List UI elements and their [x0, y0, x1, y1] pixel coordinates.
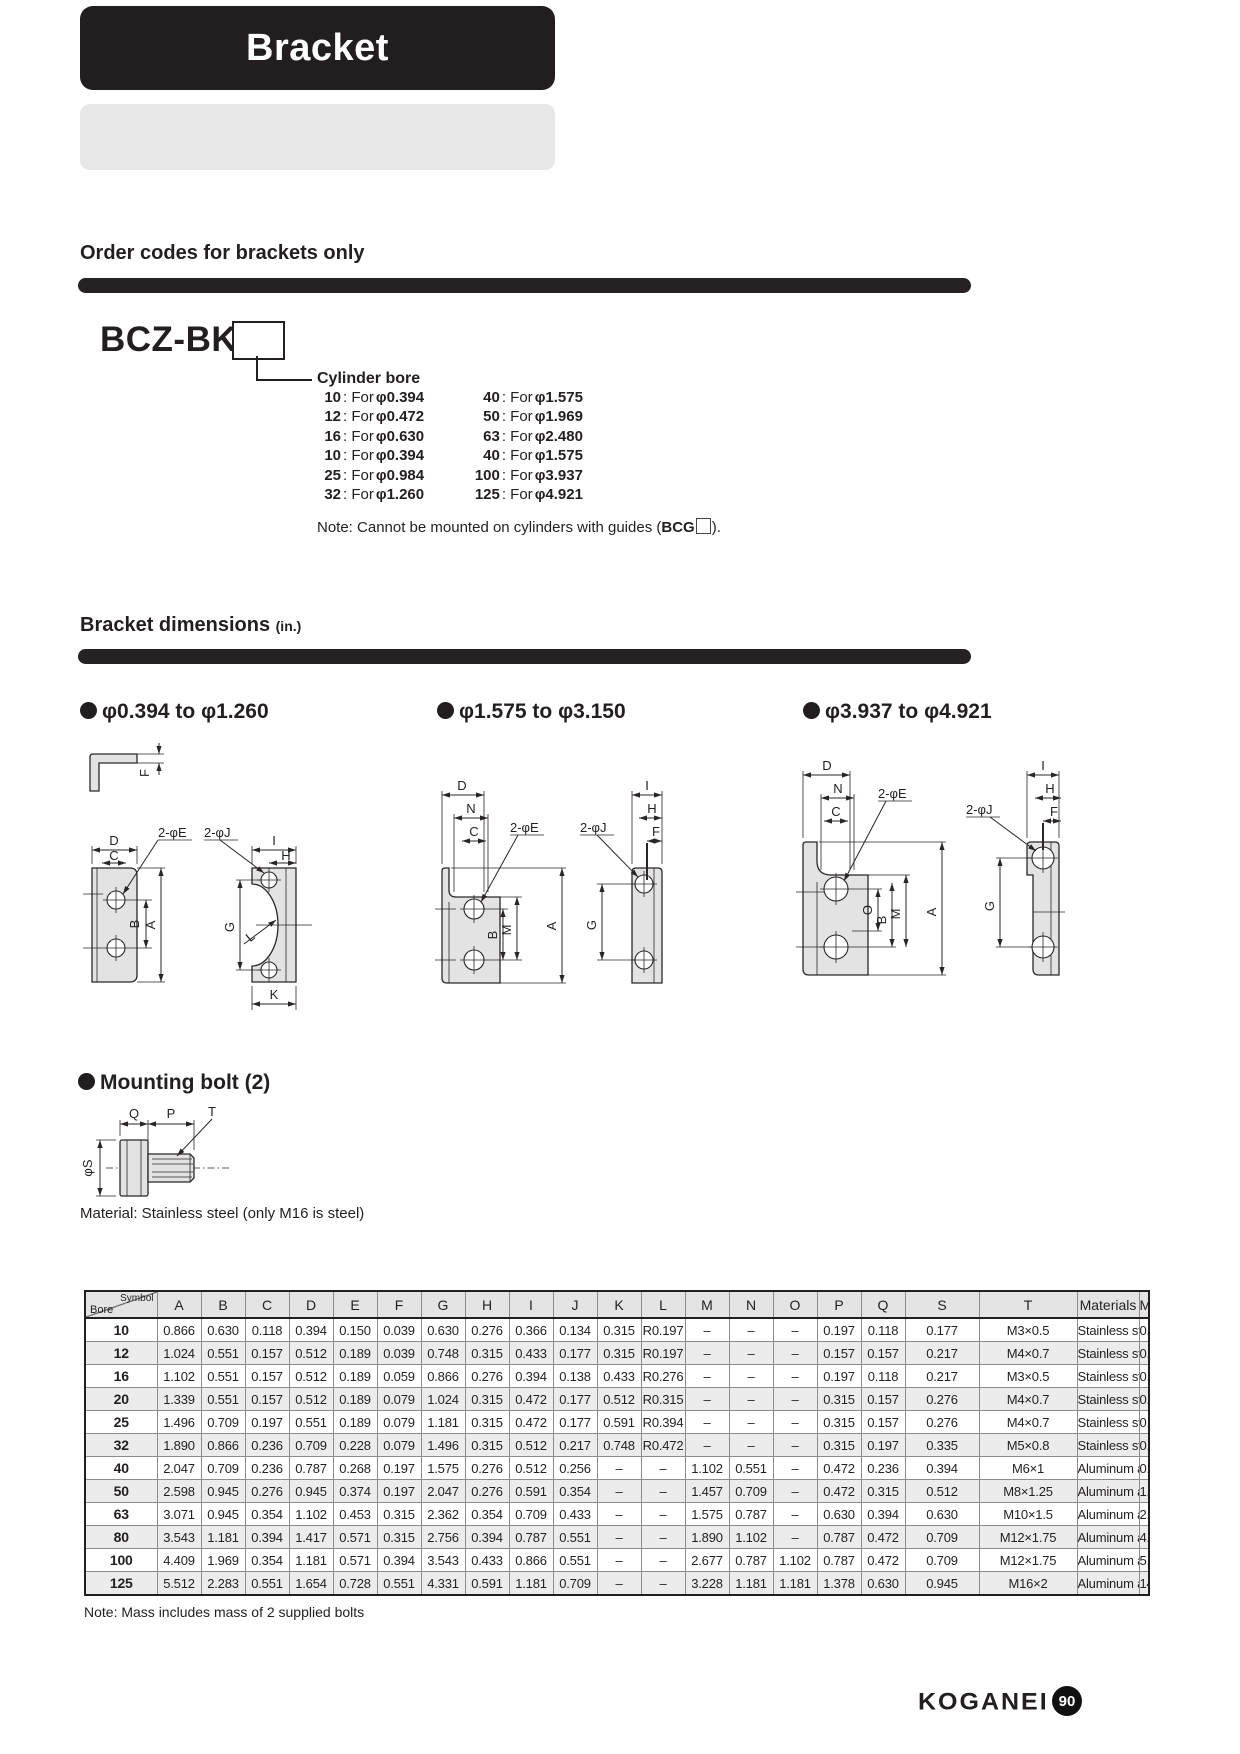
bore-value: φ0.394	[376, 388, 452, 407]
dimensions-heading-text: Bracket dimensions	[80, 614, 270, 636]
bore-value: φ1.575	[535, 446, 583, 465]
table-cell: 0.551	[245, 1572, 289, 1596]
table-row: 321.8900.8660.2360.7090.2280.0791.4960.3…	[85, 1434, 1149, 1457]
table-cell: 1.102	[685, 1457, 729, 1480]
dim-label-phi-s: φS	[80, 1159, 95, 1176]
table-cell: 0.315	[817, 1411, 861, 1434]
table-row: 161.1020.5510.1570.5120.1890.0590.8660.2…	[85, 1365, 1149, 1388]
table-cell: 0.354	[245, 1503, 289, 1526]
table-cell: 0.157	[861, 1342, 905, 1365]
table-cell: 0.21	[1139, 1342, 1149, 1365]
bore-size-box	[232, 321, 285, 360]
table-cell: Stainless steel	[1077, 1434, 1139, 1457]
table-cell: M3×0.5	[979, 1318, 1077, 1342]
bore-range-text: φ3.937 to φ4.921	[825, 700, 992, 723]
dim-label-b: B	[874, 916, 889, 925]
table-cell: 0.189	[333, 1365, 377, 1388]
dim-label-c: C	[831, 804, 840, 819]
table-cell: M12×1.75	[979, 1526, 1077, 1549]
table-cell: 0.85	[1139, 1434, 1149, 1457]
table-cell: 0.42	[1139, 1388, 1149, 1411]
table-cell: 0.118	[861, 1365, 905, 1388]
table-cell: 0.394	[861, 1503, 905, 1526]
table-cell: 1.890	[685, 1526, 729, 1549]
table-cell: 0.551	[289, 1411, 333, 1434]
table-cell: M5×0.8	[979, 1434, 1077, 1457]
table-cell: 0.118	[245, 1318, 289, 1342]
table-cell: –	[773, 1480, 817, 1503]
dim-label-b: B	[485, 931, 500, 940]
table-cell: 0.512	[289, 1342, 333, 1365]
table-cell: –	[773, 1342, 817, 1365]
table-cell: –	[773, 1503, 817, 1526]
table-cell: 0.354	[553, 1480, 597, 1503]
table-cell: 0.512	[289, 1365, 333, 1388]
bore-value: φ0.394	[376, 446, 452, 465]
table-cell: 2.677	[685, 1549, 729, 1572]
table-cell: –	[597, 1526, 641, 1549]
table-cell: 0.394	[289, 1318, 333, 1342]
table-cell: 0.315	[817, 1434, 861, 1457]
table-cell: 0.709	[201, 1411, 245, 1434]
table-cell: –	[773, 1457, 817, 1480]
table-cell: 0.276	[465, 1457, 509, 1480]
table-cell: 0.551	[377, 1572, 421, 1596]
table-cell: M6×1	[979, 1457, 1077, 1480]
table-cell: 1.654	[289, 1572, 333, 1596]
table-cell: 0.787	[729, 1549, 773, 1572]
dim-label-k: K	[270, 987, 279, 1002]
bore-code: 50	[466, 407, 500, 426]
table-cell: 0.197	[817, 1318, 861, 1342]
bore-option-row: 25: Forφ0.984100: Forφ3.937	[317, 466, 583, 485]
table-cell: Aluminum alloy	[1077, 1572, 1139, 1596]
bore-range-heading-medium: φ1.575 to φ3.150	[437, 700, 626, 724]
table-cell: 0.276	[465, 1480, 509, 1503]
bore-for-text: : For	[343, 407, 374, 426]
bore-value: φ0.472	[376, 407, 452, 426]
table-col-header: Mass (oz)	[1139, 1291, 1149, 1318]
table-cell: 1.339	[157, 1388, 201, 1411]
table-cell: 0.472	[509, 1388, 553, 1411]
table-cell: –	[597, 1549, 641, 1572]
corner-symbol-label: Symbol	[120, 1293, 153, 1304]
table-col-header: Materials	[1077, 1291, 1139, 1318]
table-cell: 0.079	[377, 1434, 421, 1457]
side-view: I H F 2-φJ G	[966, 758, 1065, 975]
table-cell: 0.394	[245, 1526, 289, 1549]
table-cell: M10×1.5	[979, 1503, 1077, 1526]
bore-code: 10	[317, 446, 341, 465]
table-cell: 0.630	[421, 1318, 465, 1342]
dim-label-i: I	[1041, 758, 1045, 773]
bracket-diagram-small-bore: F D C 2-φE B A	[70, 742, 320, 1032]
table-cell: –	[641, 1457, 685, 1480]
callout-connector-horizontal	[256, 379, 312, 381]
section-bullet	[80, 702, 97, 719]
table-cell: –	[729, 1388, 773, 1411]
table-cell: –	[773, 1434, 817, 1457]
table-cell: 1.024	[157, 1342, 201, 1365]
table-bore-cell: 63	[85, 1503, 157, 1526]
table-col-header: J	[553, 1291, 597, 1318]
table-cell: 0.197	[245, 1411, 289, 1434]
bore-value: φ1.260	[376, 485, 452, 504]
dim-label-a: A	[143, 920, 158, 929]
table-cell: –	[597, 1480, 641, 1503]
dim-label-a: A	[924, 907, 939, 916]
table-cell: 0.453	[333, 1503, 377, 1526]
table-cell: 2.756	[421, 1526, 465, 1549]
table-cell: 0.189	[333, 1342, 377, 1365]
dim-label-2phi-e: 2-φE	[510, 820, 539, 835]
bore-range-text: φ0.394 to φ1.260	[102, 700, 269, 723]
table-cell: 0.14	[1139, 1318, 1149, 1342]
table-cell: 0.571	[333, 1526, 377, 1549]
table-cell: –	[773, 1411, 817, 1434]
table-cell: 0.256	[553, 1457, 597, 1480]
table-cell: 0.866	[157, 1318, 201, 1342]
order-note-prefix: Note: Cannot be mounted on cylinders wit…	[317, 519, 661, 536]
table-cell: 0.512	[509, 1457, 553, 1480]
table-cell: 0.512	[905, 1480, 979, 1503]
table-col-header: N	[729, 1291, 773, 1318]
bore-for-text: : For	[502, 466, 533, 485]
table-cell: 0.472	[861, 1549, 905, 1572]
bore-for-text: : For	[343, 466, 374, 485]
dim-label-g: G	[982, 901, 997, 911]
bore-value: φ2.480	[535, 427, 583, 446]
table-cell: 3.543	[421, 1549, 465, 1572]
section-bullet	[78, 1073, 95, 1090]
table-cell: –	[729, 1434, 773, 1457]
table-cell: 0.354	[465, 1503, 509, 1526]
bore-for-text: : For	[343, 427, 374, 446]
order-note-suffix: ).	[712, 519, 721, 536]
table-cell: 0.118	[861, 1318, 905, 1342]
bore-value: φ3.937	[535, 466, 583, 485]
dim-label-h: H	[281, 848, 290, 863]
dim-label-p: P	[167, 1106, 176, 1121]
table-cell: 0.88	[1139, 1457, 1149, 1480]
table-cell: 1.181	[201, 1526, 245, 1549]
page-title: Bracket	[80, 6, 555, 90]
table-cell: –	[597, 1457, 641, 1480]
table-cell: 0.394	[509, 1365, 553, 1388]
dim-label-o: O	[860, 905, 875, 915]
bore-for-text: : For	[502, 427, 533, 446]
dim-label-g: G	[584, 920, 599, 930]
table-bore-cell: 12	[85, 1342, 157, 1365]
table-cell: 0.512	[509, 1434, 553, 1457]
table-cell: 0.945	[201, 1503, 245, 1526]
dimensions-table: SymbolBoreABCDEFGHIJKLMNOPQSTMaterialsMa…	[84, 1290, 1150, 1596]
table-row: 1004.4091.9690.3541.1810.5710.3943.5430.…	[85, 1549, 1149, 1572]
table-cell: 0.945	[905, 1572, 979, 1596]
table-cell: 0.157	[861, 1388, 905, 1411]
table-cell: 0.394	[905, 1457, 979, 1480]
table-cell: 0.709	[729, 1480, 773, 1503]
dim-label-d: D	[822, 758, 831, 773]
table-row: 402.0470.7090.2360.7870.2680.1971.5750.2…	[85, 1457, 1149, 1480]
table-cell: 0.217	[553, 1434, 597, 1457]
table-cell: 4.331	[421, 1572, 465, 1596]
corner-bore-label: Bore	[90, 1304, 113, 1316]
table-col-header: S	[905, 1291, 979, 1318]
bore-for-text: : For	[343, 446, 374, 465]
table-cell: –	[685, 1318, 729, 1342]
table-cell: 2.362	[421, 1503, 465, 1526]
table-cell: Aluminum alloy	[1077, 1549, 1139, 1572]
dim-label-c: C	[469, 824, 478, 839]
mounting-bolt-diagram: Q P T φS	[80, 1098, 290, 1203]
table-bore-cell: 100	[85, 1549, 157, 1572]
heading-underline-bar	[78, 278, 971, 293]
table-cell: 0.394	[465, 1526, 509, 1549]
table-cell: 3.543	[157, 1526, 201, 1549]
bore-range-heading-small: φ0.394 to φ1.260	[80, 700, 269, 724]
dim-label-t: T	[208, 1104, 216, 1119]
bore-value: φ4.921	[535, 485, 583, 504]
table-cell: M4×0.7	[979, 1388, 1077, 1411]
dim-label-2phi-e: 2-φE	[878, 786, 907, 801]
table-cell: 1.457	[685, 1480, 729, 1503]
table-cell: 1.969	[201, 1549, 245, 1572]
bore-for-text: : For	[343, 485, 374, 504]
table-col-header: G	[421, 1291, 465, 1318]
bore-code: 16	[317, 427, 341, 446]
bore-code: 40	[466, 446, 500, 465]
table-cell: 0.591	[509, 1480, 553, 1503]
table-cell: 1.102	[289, 1503, 333, 1526]
table-cell: 0.551	[729, 1457, 773, 1480]
table-cell: 3.071	[157, 1503, 201, 1526]
dim-label-n: N	[833, 781, 842, 796]
table-cell: 0.276	[905, 1388, 979, 1411]
table-cell: 0.472	[861, 1526, 905, 1549]
bore-range-heading-large: φ3.937 to φ4.921	[803, 700, 992, 724]
table-cell: 0.177	[553, 1342, 597, 1365]
bore-option-row: 12: Forφ0.47250: Forφ1.969	[317, 407, 583, 426]
table-cell: 0.787	[289, 1457, 333, 1480]
table-cell: 1.181	[509, 1572, 553, 1596]
table-cell: 1.575	[421, 1457, 465, 1480]
dim-label-i: I	[645, 778, 649, 793]
table-cell: 0.189	[333, 1388, 377, 1411]
table-cell: 0.268	[333, 1457, 377, 1480]
table-cell: 0.787	[729, 1503, 773, 1526]
table-cell: 2.047	[421, 1480, 465, 1503]
table-cell: 0.433	[597, 1365, 641, 1388]
table-cell: 0.157	[245, 1388, 289, 1411]
table-cell: 0.197	[377, 1480, 421, 1503]
table-cell: –	[641, 1480, 685, 1503]
table-cell: M16×2	[979, 1572, 1077, 1596]
table-cell: 1.378	[817, 1572, 861, 1596]
table-cell: 0.236	[861, 1457, 905, 1480]
dim-label-d: D	[457, 778, 466, 793]
table-cell: 0.134	[553, 1318, 597, 1342]
bore-value: φ1.575	[535, 388, 583, 407]
table-cell: M3×0.5	[979, 1365, 1077, 1388]
table-cell: 0.433	[465, 1549, 509, 1572]
bore-code: 12	[317, 407, 341, 426]
bore-code: 32	[317, 485, 341, 504]
table-bore-cell: 32	[85, 1434, 157, 1457]
table-cell: –	[729, 1342, 773, 1365]
table-cell: 0.709	[509, 1503, 553, 1526]
table-col-header: E	[333, 1291, 377, 1318]
table-row: 803.5431.1810.3941.4170.5710.3152.7560.3…	[85, 1526, 1149, 1549]
table-cell: 0.551	[553, 1549, 597, 1572]
table-cell: 0.039	[377, 1342, 421, 1365]
table-body: 100.8660.6300.1180.3940.1500.0390.6300.2…	[85, 1318, 1149, 1595]
table-cell: R0.394	[641, 1411, 685, 1434]
dim-label-n: N	[466, 801, 475, 816]
bore-option-row: 32: Forφ1.260125: Forφ4.921	[317, 485, 583, 504]
koganei-logo: KOGANEI	[918, 1689, 1049, 1717]
table-cell: 0.276	[465, 1318, 509, 1342]
table-cell: 2.82	[1139, 1503, 1149, 1526]
bore-value: φ0.630	[376, 427, 452, 446]
table-cell: 1.181	[421, 1411, 465, 1434]
material-note: Material: Stainless steel (only M16 is s…	[80, 1205, 364, 1222]
table-col-header: F	[377, 1291, 421, 1318]
table-cell: 2.598	[157, 1480, 201, 1503]
table-cell: R0.315	[641, 1388, 685, 1411]
table-cell: 0.315	[377, 1526, 421, 1549]
table-cell: 0.059	[377, 1365, 421, 1388]
table-row: 100.8660.6300.1180.3940.1500.0390.6300.2…	[85, 1318, 1149, 1342]
dim-label-2phi-j: 2-φJ	[204, 825, 231, 840]
table-cell: Stainless steel	[1077, 1342, 1139, 1365]
dim-label-a: A	[544, 921, 559, 930]
dim-label-d: D	[109, 833, 118, 848]
table-cell: –	[729, 1411, 773, 1434]
table-cell: 0.079	[377, 1411, 421, 1434]
table-col-header: D	[289, 1291, 333, 1318]
table-bore-cell: 20	[85, 1388, 157, 1411]
table-cell: 5.512	[157, 1572, 201, 1596]
table-cell: 0.472	[509, 1411, 553, 1434]
table-cell: 0.709	[201, 1457, 245, 1480]
table-cell: M8×1.25	[979, 1480, 1077, 1503]
table-cell: M12×1.75	[979, 1549, 1077, 1572]
table-cell: 0.709	[289, 1434, 333, 1457]
table-cell: 0.197	[377, 1457, 421, 1480]
table-cell: 0.25	[1139, 1365, 1149, 1388]
table-cell: 0.276	[245, 1480, 289, 1503]
table-cell: 0.079	[377, 1388, 421, 1411]
table-cell: 2.047	[157, 1457, 201, 1480]
table-cell: –	[641, 1549, 685, 1572]
table-cell: 0.157	[245, 1365, 289, 1388]
front-view: D N C 2-φE O B M A	[796, 758, 946, 975]
table-cell: 0.039	[377, 1318, 421, 1342]
table-col-header: I	[509, 1291, 553, 1318]
table-cell: 0.571	[333, 1549, 377, 1572]
table-cell: –	[685, 1365, 729, 1388]
dimensions-heading-unit: (in.)	[276, 618, 302, 634]
table-cell: Aluminum alloy	[1077, 1480, 1139, 1503]
table-row: 121.0240.5510.1570.5120.1890.0390.7480.3…	[85, 1342, 1149, 1365]
table-cell: 0.236	[245, 1434, 289, 1457]
table-cell: –	[597, 1572, 641, 1596]
table-cell: 0.748	[597, 1434, 641, 1457]
table-cell: 4.51	[1139, 1526, 1149, 1549]
table-cell: 14.46	[1139, 1572, 1149, 1596]
table-cell: 0.787	[817, 1549, 861, 1572]
table-cell: –	[773, 1318, 817, 1342]
table-cell: –	[729, 1318, 773, 1342]
l-profile-view: F	[90, 743, 164, 791]
bore-code: 25	[317, 466, 341, 485]
table-cell: 0.630	[861, 1572, 905, 1596]
table-cell: Aluminum alloy	[1077, 1457, 1139, 1480]
table-cell: M4×0.7	[979, 1411, 1077, 1434]
table-bore-cell: 125	[85, 1572, 157, 1596]
table-col-header: Q	[861, 1291, 905, 1318]
table-cell: –	[685, 1388, 729, 1411]
bore-for-text: : For	[343, 388, 374, 407]
bore-code: 10	[317, 388, 341, 407]
table-cell: 0.630	[905, 1503, 979, 1526]
table-cell: 0.472	[817, 1457, 861, 1480]
table-cell: Stainless steel	[1077, 1388, 1139, 1411]
table-col-header: H	[465, 1291, 509, 1318]
table-cell: 1.59	[1139, 1480, 1149, 1503]
table-cell: 1.024	[421, 1388, 465, 1411]
bore-for-text: : For	[502, 485, 533, 504]
table-cell: R0.276	[641, 1365, 685, 1388]
mounting-bolt-heading-text: Mounting bolt (2)	[100, 1071, 270, 1094]
table-cell: Stainless steel	[1077, 1365, 1139, 1388]
table-cell: 0.433	[553, 1503, 597, 1526]
table-cell: –	[685, 1411, 729, 1434]
table-cell: 0.787	[509, 1526, 553, 1549]
bore-option-row: 16: Forφ0.63063: Forφ2.480	[317, 427, 583, 446]
table-cell: 0.315	[597, 1318, 641, 1342]
bore-for-text: : For	[502, 407, 533, 426]
table-bore-cell: 16	[85, 1365, 157, 1388]
table-cell: 0.551	[553, 1526, 597, 1549]
table-col-header: T	[979, 1291, 1077, 1318]
table-cell: –	[685, 1434, 729, 1457]
table-cell: 0.177	[905, 1318, 979, 1342]
table-col-header: B	[201, 1291, 245, 1318]
dim-label-c: C	[109, 848, 118, 863]
bore-value: φ0.984	[376, 466, 452, 485]
table-col-header: P	[817, 1291, 861, 1318]
table-cell: 1.102	[729, 1526, 773, 1549]
front-view: D C 2-φE B A	[83, 825, 192, 982]
table-cell: –	[641, 1572, 685, 1596]
order-note-code: BCG	[661, 519, 694, 536]
table-cell: 0.276	[905, 1411, 979, 1434]
dim-label-h: H	[647, 801, 656, 816]
side-view: I H F 2-φJ G	[580, 778, 662, 983]
table-col-header: A	[157, 1291, 201, 1318]
table-cell: 0.866	[509, 1549, 553, 1572]
heading-underline-bar-2	[78, 649, 971, 664]
table-col-header: O	[773, 1291, 817, 1318]
table-cell: 0.866	[201, 1434, 245, 1457]
table-cell: 0.177	[553, 1388, 597, 1411]
section-bullet	[437, 702, 454, 719]
table-cell: 1.890	[157, 1434, 201, 1457]
table-cell: –	[597, 1503, 641, 1526]
table-cell: 0.157	[817, 1342, 861, 1365]
